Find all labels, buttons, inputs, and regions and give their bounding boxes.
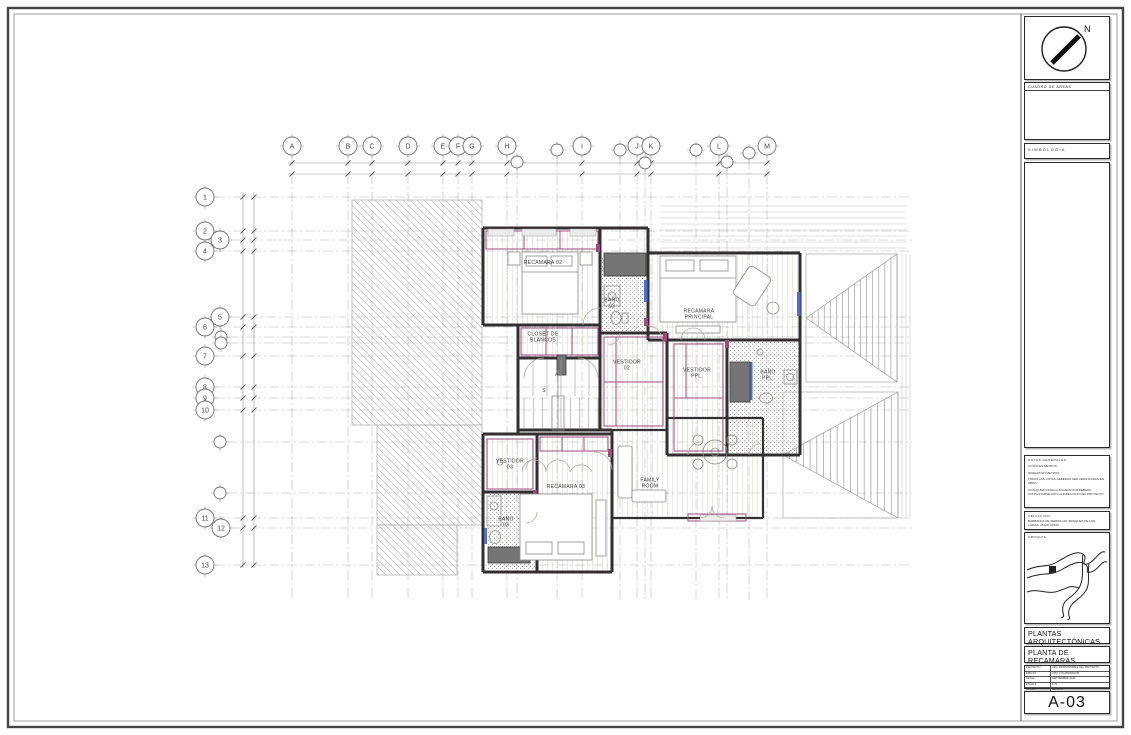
grid-bubble-top bbox=[548, 141, 566, 159]
svg-text:6: 6 bbox=[203, 324, 207, 331]
floor-plan-drawing: ABCDEFGHIJKLM12345678910111213 bbox=[0, 0, 1131, 735]
grid-bubble-top: M bbox=[755, 134, 779, 158]
areas-panel: CUADRO DE AREAS bbox=[1024, 82, 1110, 140]
areas-header: CUADRO DE AREAS bbox=[1025, 83, 1109, 91]
grid-bubble-top: K bbox=[639, 134, 663, 158]
notes-panel: NOTAS GENERALES: COTAS EN METROS.NIVELES… bbox=[1024, 455, 1110, 508]
svg-text:3: 3 bbox=[218, 237, 222, 244]
simbologia-panel bbox=[1024, 162, 1110, 448]
svg-text:7: 7 bbox=[203, 353, 207, 360]
hip-roof-top bbox=[806, 254, 897, 382]
svg-text:M: M bbox=[764, 143, 770, 150]
svg-text:4: 4 bbox=[203, 248, 207, 255]
stairs bbox=[524, 360, 598, 430]
croquis-panel: CROQUIS: bbox=[1024, 532, 1110, 624]
north-arrow-icon: N bbox=[1026, 18, 1108, 78]
note-line: COTAS EN METROS. bbox=[1028, 464, 1106, 468]
grid-bubble-top: H bbox=[495, 134, 519, 158]
svg-text:2: 2 bbox=[203, 228, 207, 235]
grid-bubble-top bbox=[687, 141, 705, 159]
north-arrow-box: N bbox=[1024, 16, 1110, 80]
svg-text:G: G bbox=[469, 143, 474, 150]
note-line: CUALQUIER DUDA O ACLARACION DEBERA CONSU… bbox=[1028, 488, 1106, 496]
svg-text:10: 10 bbox=[201, 407, 209, 414]
lower-roof-hatch-area bbox=[352, 200, 482, 575]
sheet-number: A-03 bbox=[1025, 692, 1109, 713]
svg-text:A: A bbox=[290, 143, 295, 150]
grid-bubble-top: I bbox=[570, 134, 594, 158]
grid-bubble-top: D bbox=[396, 134, 420, 158]
location-text: BARRANCA DE SIERRA 115, BOSQUES DE LAS L… bbox=[1025, 519, 1109, 528]
simbologia-header-box: SIMBOLOGIA bbox=[1024, 143, 1110, 159]
location-panel: UBICACION: BARRANCA DE SIERRA 115, BOSQU… bbox=[1024, 511, 1110, 530]
grid-bubble-top bbox=[718, 153, 736, 171]
svg-text:C: C bbox=[369, 143, 374, 150]
svg-text:H: H bbox=[504, 143, 509, 150]
info-table: PROYECTO:ARQ. RESPONSABLE DEL PROYECTODI… bbox=[1025, 666, 1109, 694]
sheet-title-box-2: PLANTA DE RECAMARAS bbox=[1024, 646, 1110, 663]
svg-text:K: K bbox=[649, 143, 654, 150]
svg-text:12: 12 bbox=[217, 525, 225, 532]
svg-text:5: 5 bbox=[218, 314, 222, 321]
grid-bubble-left: 13 bbox=[193, 553, 217, 577]
svg-text:J: J bbox=[635, 143, 639, 150]
grid-bubble-top bbox=[508, 153, 526, 171]
svg-text:F: F bbox=[456, 143, 460, 150]
svg-text:E: E bbox=[441, 143, 446, 150]
svg-text:11: 11 bbox=[201, 515, 208, 522]
grid-bubble-top: B bbox=[336, 134, 360, 158]
grid-bubble-top: C bbox=[360, 134, 384, 158]
sheet-number-box: A-03 bbox=[1024, 691, 1110, 714]
grid-bubble-top: L bbox=[707, 134, 731, 158]
notes-text: COTAS EN METROS.NIVELES EN METROS.TODAS … bbox=[1025, 463, 1109, 499]
grid-bubble-left bbox=[211, 484, 229, 502]
svg-text:I: I bbox=[581, 143, 583, 150]
svg-text:D: D bbox=[405, 143, 410, 150]
note-line: TODAS LAS COTAS DEBERAN SER VERIFICADAS … bbox=[1028, 477, 1106, 485]
svg-text:13: 13 bbox=[201, 562, 209, 569]
simbologia-header: SIMBOLOGIA bbox=[1025, 144, 1109, 153]
location-map-sketch bbox=[1025, 540, 1109, 620]
grid-bubble-left: 7 bbox=[193, 344, 217, 368]
grid-bubble-top: G bbox=[460, 134, 484, 158]
grid-bubble-left bbox=[211, 433, 229, 451]
notes-header: NOTAS GENERALES: bbox=[1025, 456, 1109, 463]
location-header: UBICACION: bbox=[1025, 512, 1109, 519]
drawing-sheet: ABCDEFGHIJKLM12345678910111213 bbox=[0, 0, 1131, 735]
grid-bubble-left: 1 bbox=[193, 185, 217, 209]
note-line: NIVELES EN METROS. bbox=[1028, 471, 1106, 475]
svg-text:1: 1 bbox=[203, 194, 207, 201]
svg-text:L: L bbox=[717, 143, 721, 150]
grid-bubble-top bbox=[740, 144, 758, 162]
north-label: N bbox=[1084, 24, 1091, 34]
croquis-header: CROQUIS: bbox=[1025, 533, 1109, 540]
grid-bubble-top bbox=[611, 141, 629, 159]
sheet-title-box-1: PLANTAS ARQUITECTÓNICAS bbox=[1024, 627, 1110, 644]
svg-text:B: B bbox=[346, 143, 351, 150]
info-table-box: PROYECTO:ARQ. RESPONSABLE DEL PROYECTODI… bbox=[1024, 665, 1110, 689]
grid-bubble-top: A bbox=[280, 134, 304, 158]
